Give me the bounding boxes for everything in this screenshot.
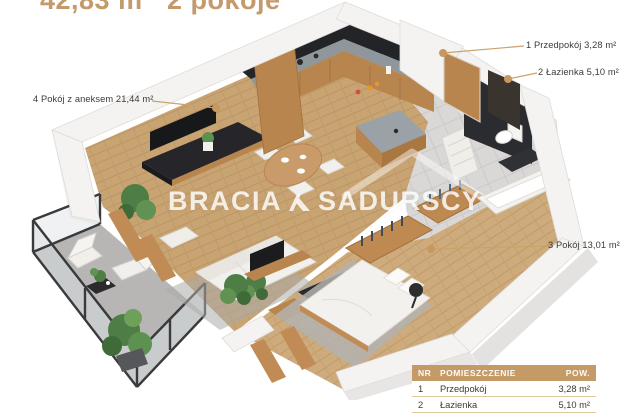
legend-header-nr: NR: [418, 368, 440, 378]
legend-header-row: NR POMIESZCZENIE POW.: [412, 365, 596, 381]
room-label-living: 4 Pokój z aneksem 21,44 m²: [33, 94, 153, 104]
legend-row: 2 Łazienka 5,10 m²: [412, 397, 596, 413]
floorplan-page: 42,83 m² 2 pokoje 4 Pokój z aneksem 21,4…: [0, 0, 620, 400]
apartment-area-title: 42,83 m²: [40, 0, 152, 16]
label-dot-hallway: [439, 49, 447, 57]
label-dot-bedroom: [427, 245, 435, 253]
legend-row-name: Łazienka: [440, 400, 558, 410]
label-dot-living: [212, 104, 220, 112]
brand-name-left: BRACIA: [168, 186, 282, 217]
legend-row-nr: 1: [418, 384, 440, 394]
plant-on-stand: [202, 132, 214, 151]
legend-row-nr: 2: [418, 400, 440, 410]
room-label-bathroom: 2 Łazienka 5,10 m²: [538, 67, 619, 77]
legend-row-name: Przedpokój: [440, 384, 558, 394]
legend-header-pow: POW.: [566, 368, 590, 378]
room-legend-table: NR POMIESZCZENIE POW. 1 Przedpokój 3,28 …: [412, 365, 596, 413]
legend-row: 1 Przedpokój 3,28 m²: [412, 381, 596, 397]
room-label-hallway: 1 Przedpokój 3,28 m²: [526, 40, 616, 50]
legend-header-name: POMIESZCZENIE: [440, 368, 566, 378]
legend-row-pow: 3,28 m²: [558, 384, 590, 394]
legend-row-pow: 5,10 m²: [558, 400, 590, 410]
label-dot-bathroom: [504, 75, 512, 83]
room-label-bedroom: 3 Pokój 13,01 m²: [548, 240, 620, 250]
brand-name-right: SADURSCY: [318, 186, 482, 217]
brand-logo-icon: [288, 192, 312, 212]
apartment-rooms-title: 2 pokoje: [167, 0, 281, 16]
brand-watermark: BRACIA SADURSCY: [168, 186, 482, 217]
wall-left: [52, 130, 100, 222]
